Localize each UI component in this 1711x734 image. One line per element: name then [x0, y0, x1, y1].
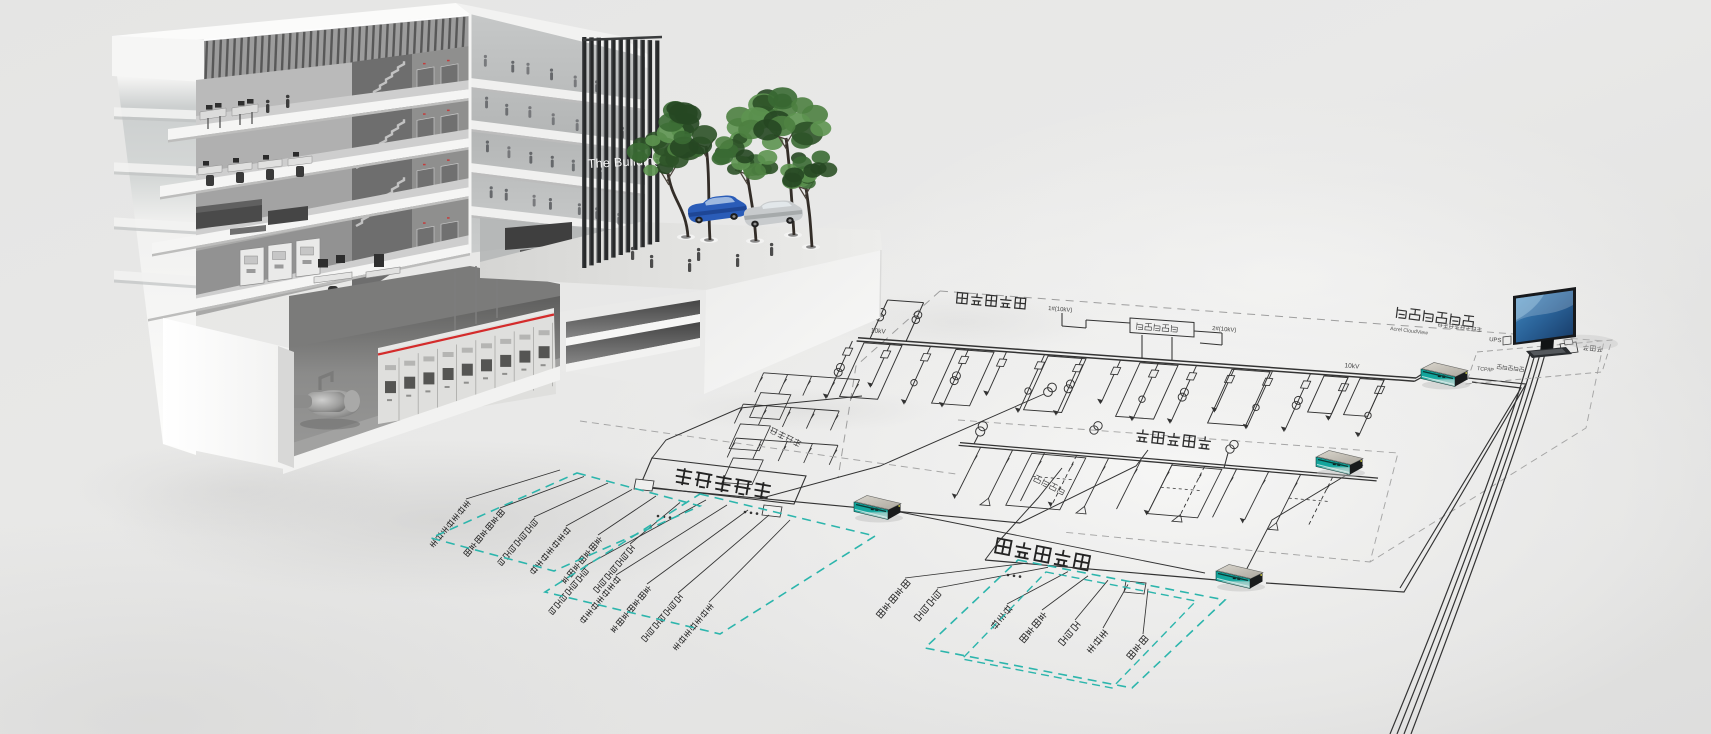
svg-text:UPS: UPS — [1489, 337, 1502, 344]
svg-text:10kV: 10kV — [1344, 362, 1360, 370]
